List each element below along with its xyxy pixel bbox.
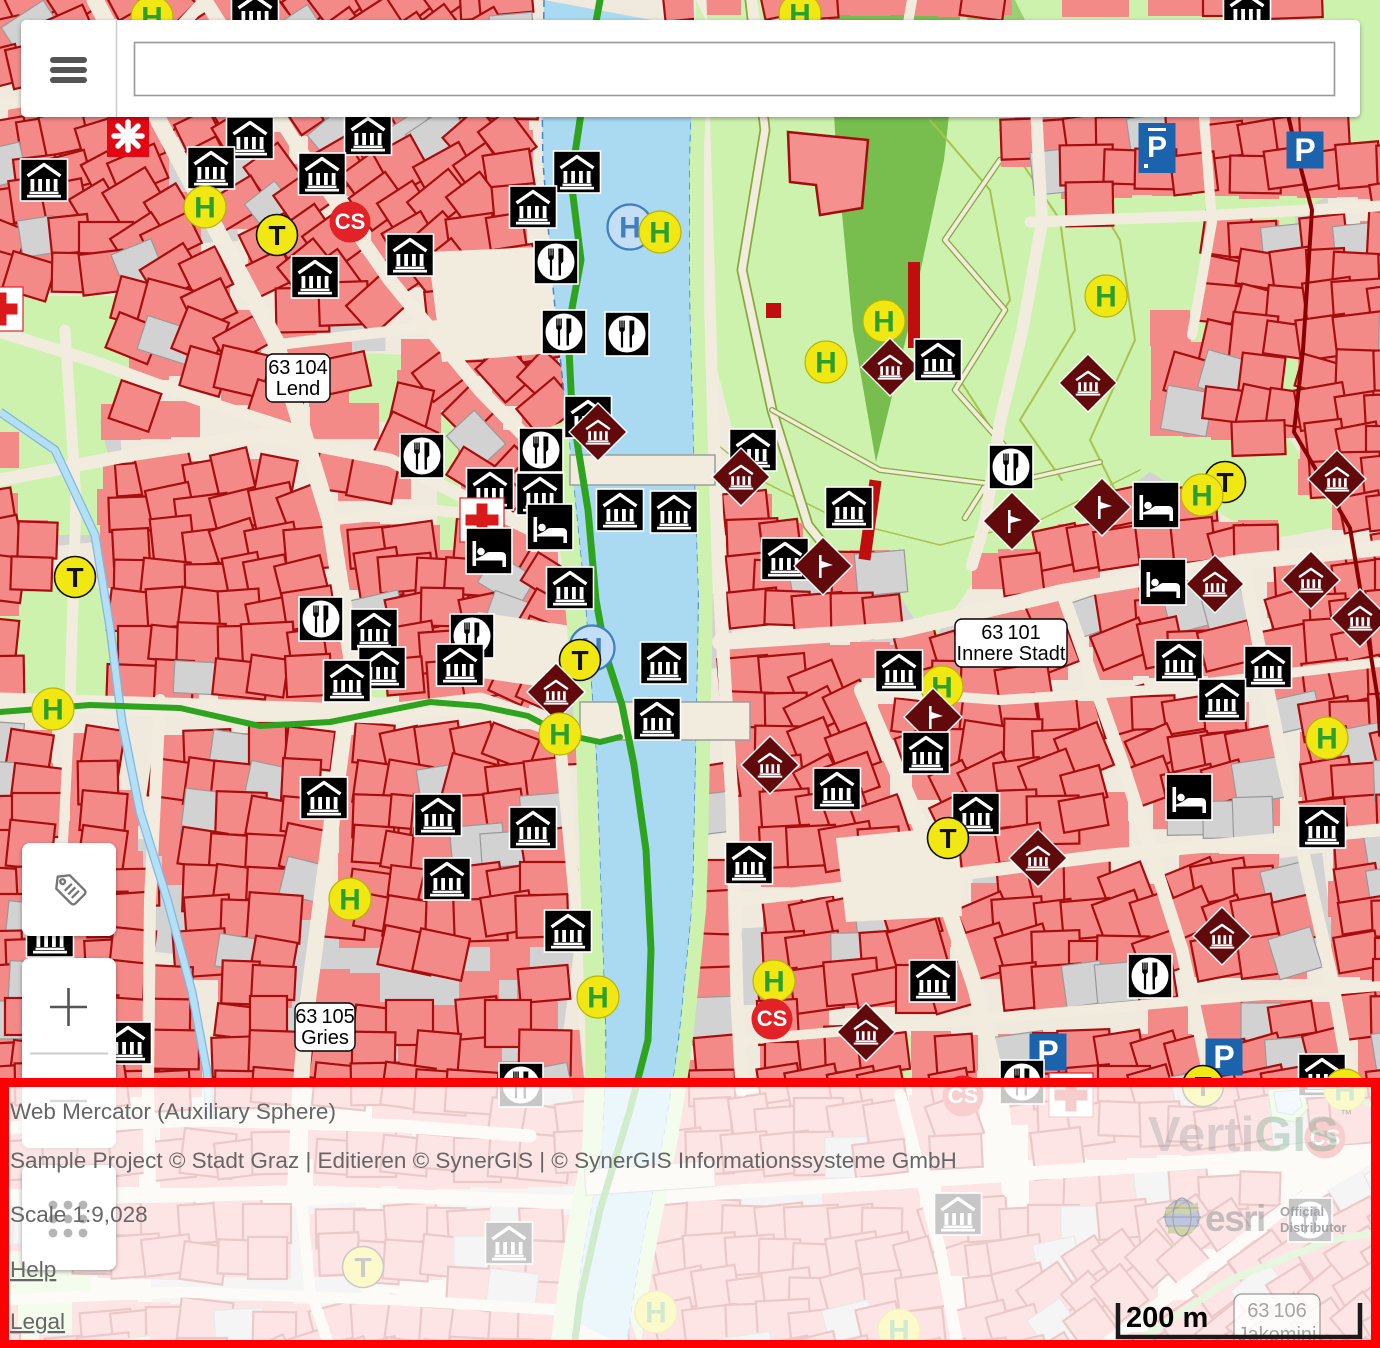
svg-text:Official: Official	[1280, 1204, 1324, 1219]
svg-text:Scale 1:9,028: Scale 1:9,028	[10, 1202, 148, 1227]
svg-text:Distributor: Distributor	[1280, 1220, 1346, 1235]
svg-text:63 101: 63 101	[981, 622, 1041, 644]
svg-text:esri: esri	[1205, 1198, 1265, 1239]
svg-text:Web Mercator (Auxiliary Sphere: Web Mercator (Auxiliary Sphere)	[10, 1099, 336, 1124]
svg-text:Legal: Legal	[10, 1309, 65, 1334]
svg-text:63 105: 63 105	[295, 1006, 355, 1028]
svg-text:Innere Stadt: Innere Stadt	[957, 643, 1066, 665]
svg-text:Gries: Gries	[301, 1027, 349, 1049]
svg-text:200 m: 200 m	[1126, 1302, 1208, 1334]
svg-text:Sample Project © Stadt Graz |: Sample Project © Stadt Graz | Editieren …	[10, 1148, 957, 1173]
svg-text:™: ™	[1340, 1107, 1352, 1121]
svg-text:63 104: 63 104	[268, 357, 328, 379]
svg-text:Help: Help	[10, 1257, 56, 1282]
svg-text:63 106: 63 106	[1247, 1300, 1307, 1322]
svg-text:Lend: Lend	[276, 378, 321, 400]
svg-text:VertiGIS: VertiGIS	[1148, 1108, 1339, 1162]
